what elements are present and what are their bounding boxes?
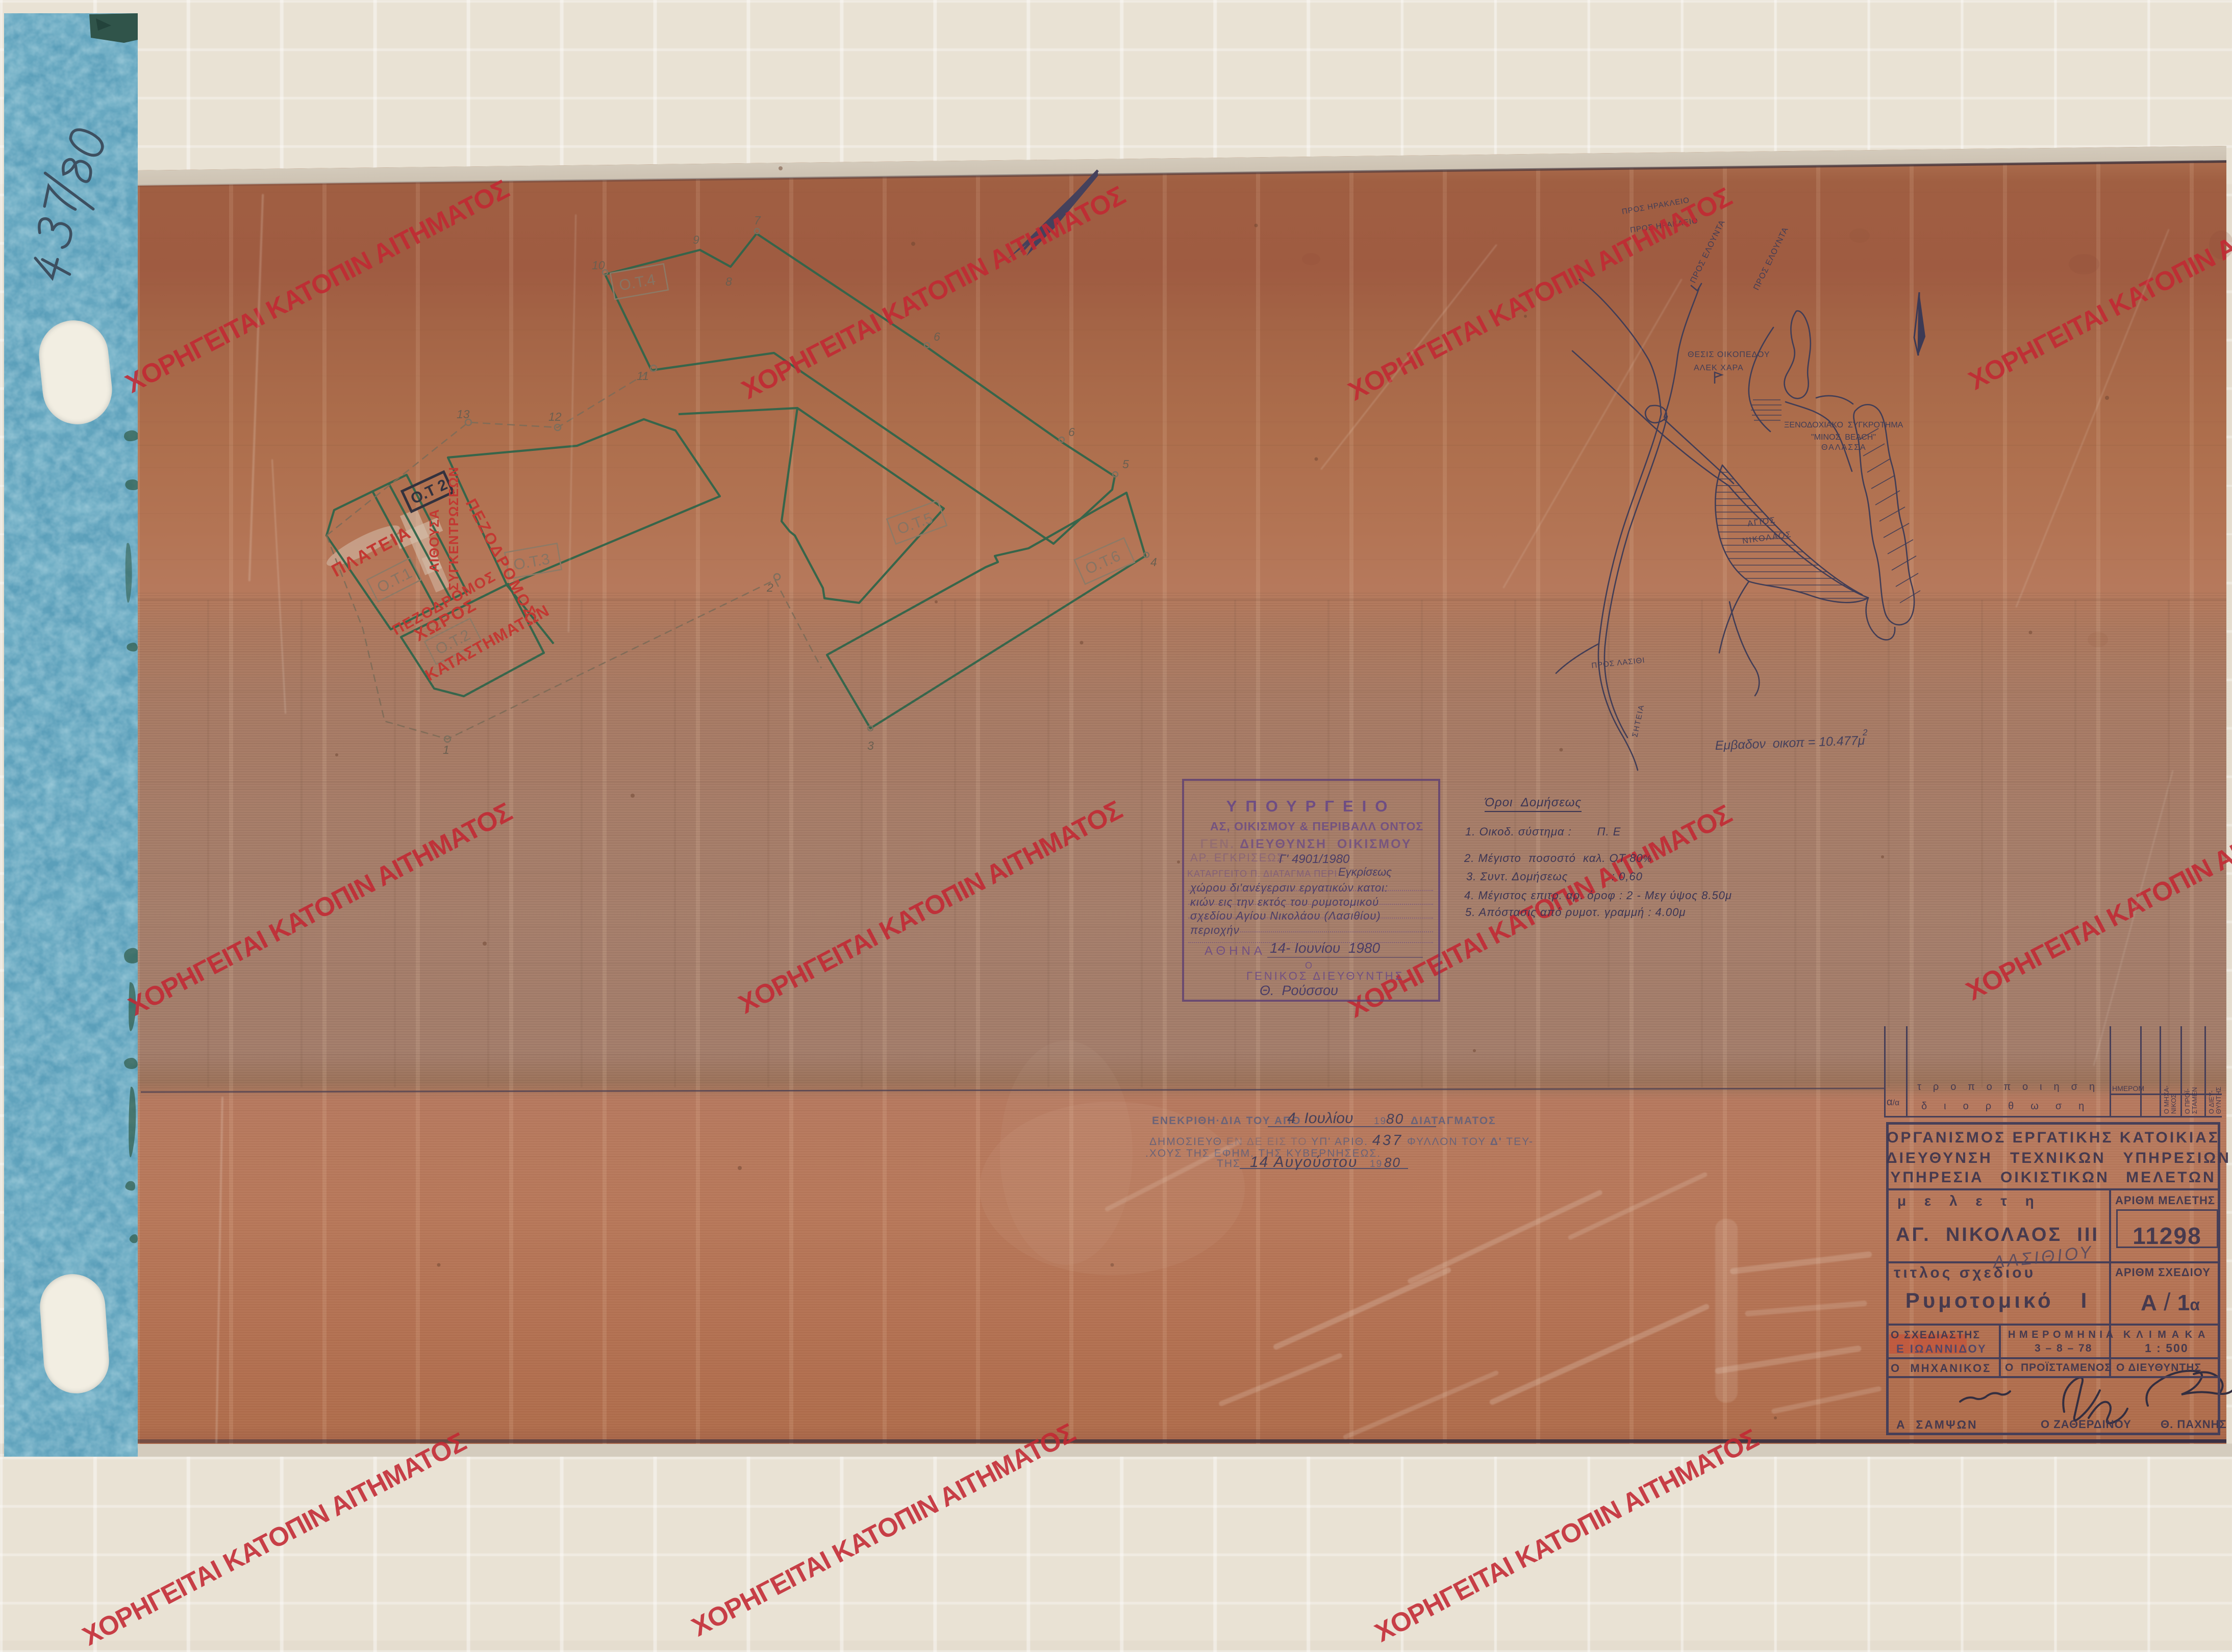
svg-text:ΘΕΣΙΣ ΟΙΚΟΠΕΔΟΥ: ΘΕΣΙΣ ΟΙΚΟΠΕΔΟΥ <box>1688 350 1770 359</box>
svg-text:4: 4 <box>1150 555 1157 569</box>
svg-text:O.T.4: O.T.4 <box>618 271 657 294</box>
svg-text:ΝΙΚΟΛΑΟΣ: ΝΙΚΟΛΑΟΣ <box>1742 530 1792 546</box>
svg-text:3: 3 <box>867 739 874 752</box>
svg-text:ΑΓΙΟΣ: ΑΓΙΟΣ <box>1747 516 1776 528</box>
svg-text:ΞΕΝΟΔΟΧΙΑΚΟ ΣΥΓΚΡΟΤΗΜΑ: ΞΕΝΟΔΟΧΙΑΚΟ ΣΥΓΚΡΟΤΗΜΑ <box>1784 421 1903 429</box>
svg-text:2: 2 <box>1862 728 1868 738</box>
svg-text:ΑΛΕΚ ΧΑΡΑ: ΑΛΕΚ ΧΑΡΑ <box>1694 364 1744 372</box>
svg-text:ΠΡΟΣ ΛΑΣΙΘΙ: ΠΡΟΣ ΛΑΣΙΘΙ <box>1591 656 1646 670</box>
svg-text:1: 1 <box>443 743 449 756</box>
svg-text:"ΜΙΝΟΣ BEACH": "ΜΙΝΟΣ BEACH" <box>1811 433 1876 442</box>
svg-text:13: 13 <box>457 408 470 421</box>
svg-text:8: 8 <box>725 275 732 288</box>
svg-text:ΠΡΟΣ ΕΛΟΥΝΤΑ: ΠΡΟΣ ΕΛΟΥΝΤΑ <box>1752 226 1790 292</box>
svg-text:7: 7 <box>754 214 761 227</box>
svg-text:5: 5 <box>1122 458 1129 471</box>
svg-text:ΣΗΤΕΙΑ: ΣΗΤΕΙΑ <box>1631 703 1646 738</box>
svg-text:ΘΑΛΑΣΣΑ: ΘΑΛΑΣΣΑ <box>1821 443 1867 452</box>
svg-text:O.T.1: O.T.1 <box>374 565 415 596</box>
svg-text:ΑΙΘΟΥΣΑ: ΑΙΘΟΥΣΑ <box>427 509 442 572</box>
svg-text:6: 6 <box>1068 425 1075 439</box>
svg-text:10: 10 <box>592 259 605 272</box>
svg-text:ΣΥΓΚΕΝΤΡΩΣΕΩΝ: ΣΥΓΚΕΝΤΡΩΣΕΩΝ <box>446 467 461 591</box>
svg-text:6: 6 <box>934 330 940 343</box>
svg-text:9: 9 <box>693 233 699 246</box>
svg-text:2: 2 <box>766 581 773 594</box>
svg-text:11: 11 <box>637 369 649 383</box>
svg-text:12: 12 <box>548 410 562 423</box>
svg-text:Εμβαδον οικοπ = 10.477μ: Εμβαδον οικοπ = 10.477μ <box>1715 733 1865 753</box>
